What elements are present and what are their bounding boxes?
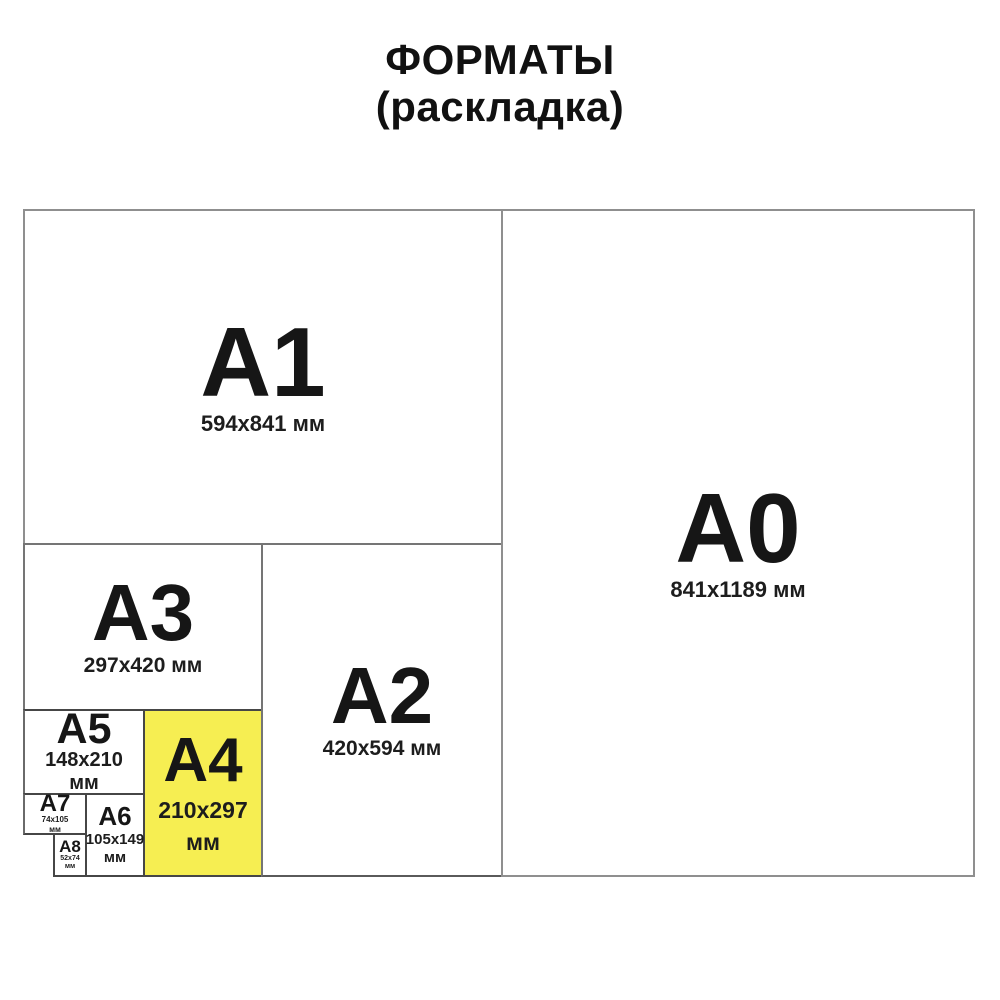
sheet-a3-dims: 297x420 мм — [84, 653, 203, 678]
page-title-line-1: ФОРМАТЫ — [0, 36, 1000, 83]
sheet-a8-dims-line-1: 52x74 — [60, 855, 79, 862]
sheet-a4: A4 210x297 мм — [143, 709, 261, 877]
sheet-a6-dims-line-2: мм — [104, 850, 126, 865]
paper-formats-layout-page: ФОРМАТЫ (раскладка) A1 594x841 мм A0 841… — [0, 0, 1000, 1000]
sheet-a7: A7 74x105 мм — [23, 793, 85, 835]
sheet-a5-dims-line-1: 148x210 — [45, 751, 123, 770]
sheet-a4-label: A4 — [163, 732, 242, 791]
sheet-a0-dims: 841x1189 мм — [670, 577, 805, 603]
sheet-a0: A0 841x1189 мм — [501, 209, 975, 877]
sheet-a7-label: A7 — [40, 794, 71, 813]
page-title-line-2: (раскладка) — [0, 83, 1000, 130]
sheet-a0-label: A0 — [675, 483, 800, 573]
sheet-a3-label: A3 — [92, 576, 194, 650]
sheet-a5-dims-line-2: мм — [69, 774, 99, 793]
sheet-a7-dims-line-1: 74x105 — [42, 816, 69, 824]
sheet-a4-dims-line-1: 210x297 — [158, 799, 248, 822]
sheet-a2-dims: 420x594 мм — [323, 736, 442, 761]
sheet-a5: A5 148x210 мм — [23, 709, 143, 793]
sheet-a2: A2 420x594 мм — [261, 543, 501, 877]
sheet-a8: A8 52x74 мм — [53, 835, 85, 877]
sheet-a1-dims: 594x841 мм — [201, 411, 325, 437]
sheet-a6: A6 105x149 мм — [85, 793, 143, 877]
sheet-a2-label: A2 — [331, 659, 433, 733]
sheet-a1-label: A1 — [200, 317, 325, 407]
sheet-a8-label: A8 — [59, 840, 81, 854]
sheet-a8-dims-line-2: мм — [65, 863, 75, 870]
sheet-a1: A1 594x841 мм — [23, 209, 501, 543]
sheet-a6-dims-line-1: 105x149 — [86, 832, 144, 847]
sheet-a3: A3 297x420 мм — [23, 543, 261, 709]
sheet-a5-label: A5 — [57, 711, 112, 748]
sheet-a7-dims-line-2: мм — [49, 826, 61, 834]
sheet-a4-dims-line-2: мм — [186, 831, 220, 854]
page-title: ФОРМАТЫ (раскладка) — [0, 36, 1000, 130]
sheet-a6-label: A6 — [98, 805, 131, 828]
